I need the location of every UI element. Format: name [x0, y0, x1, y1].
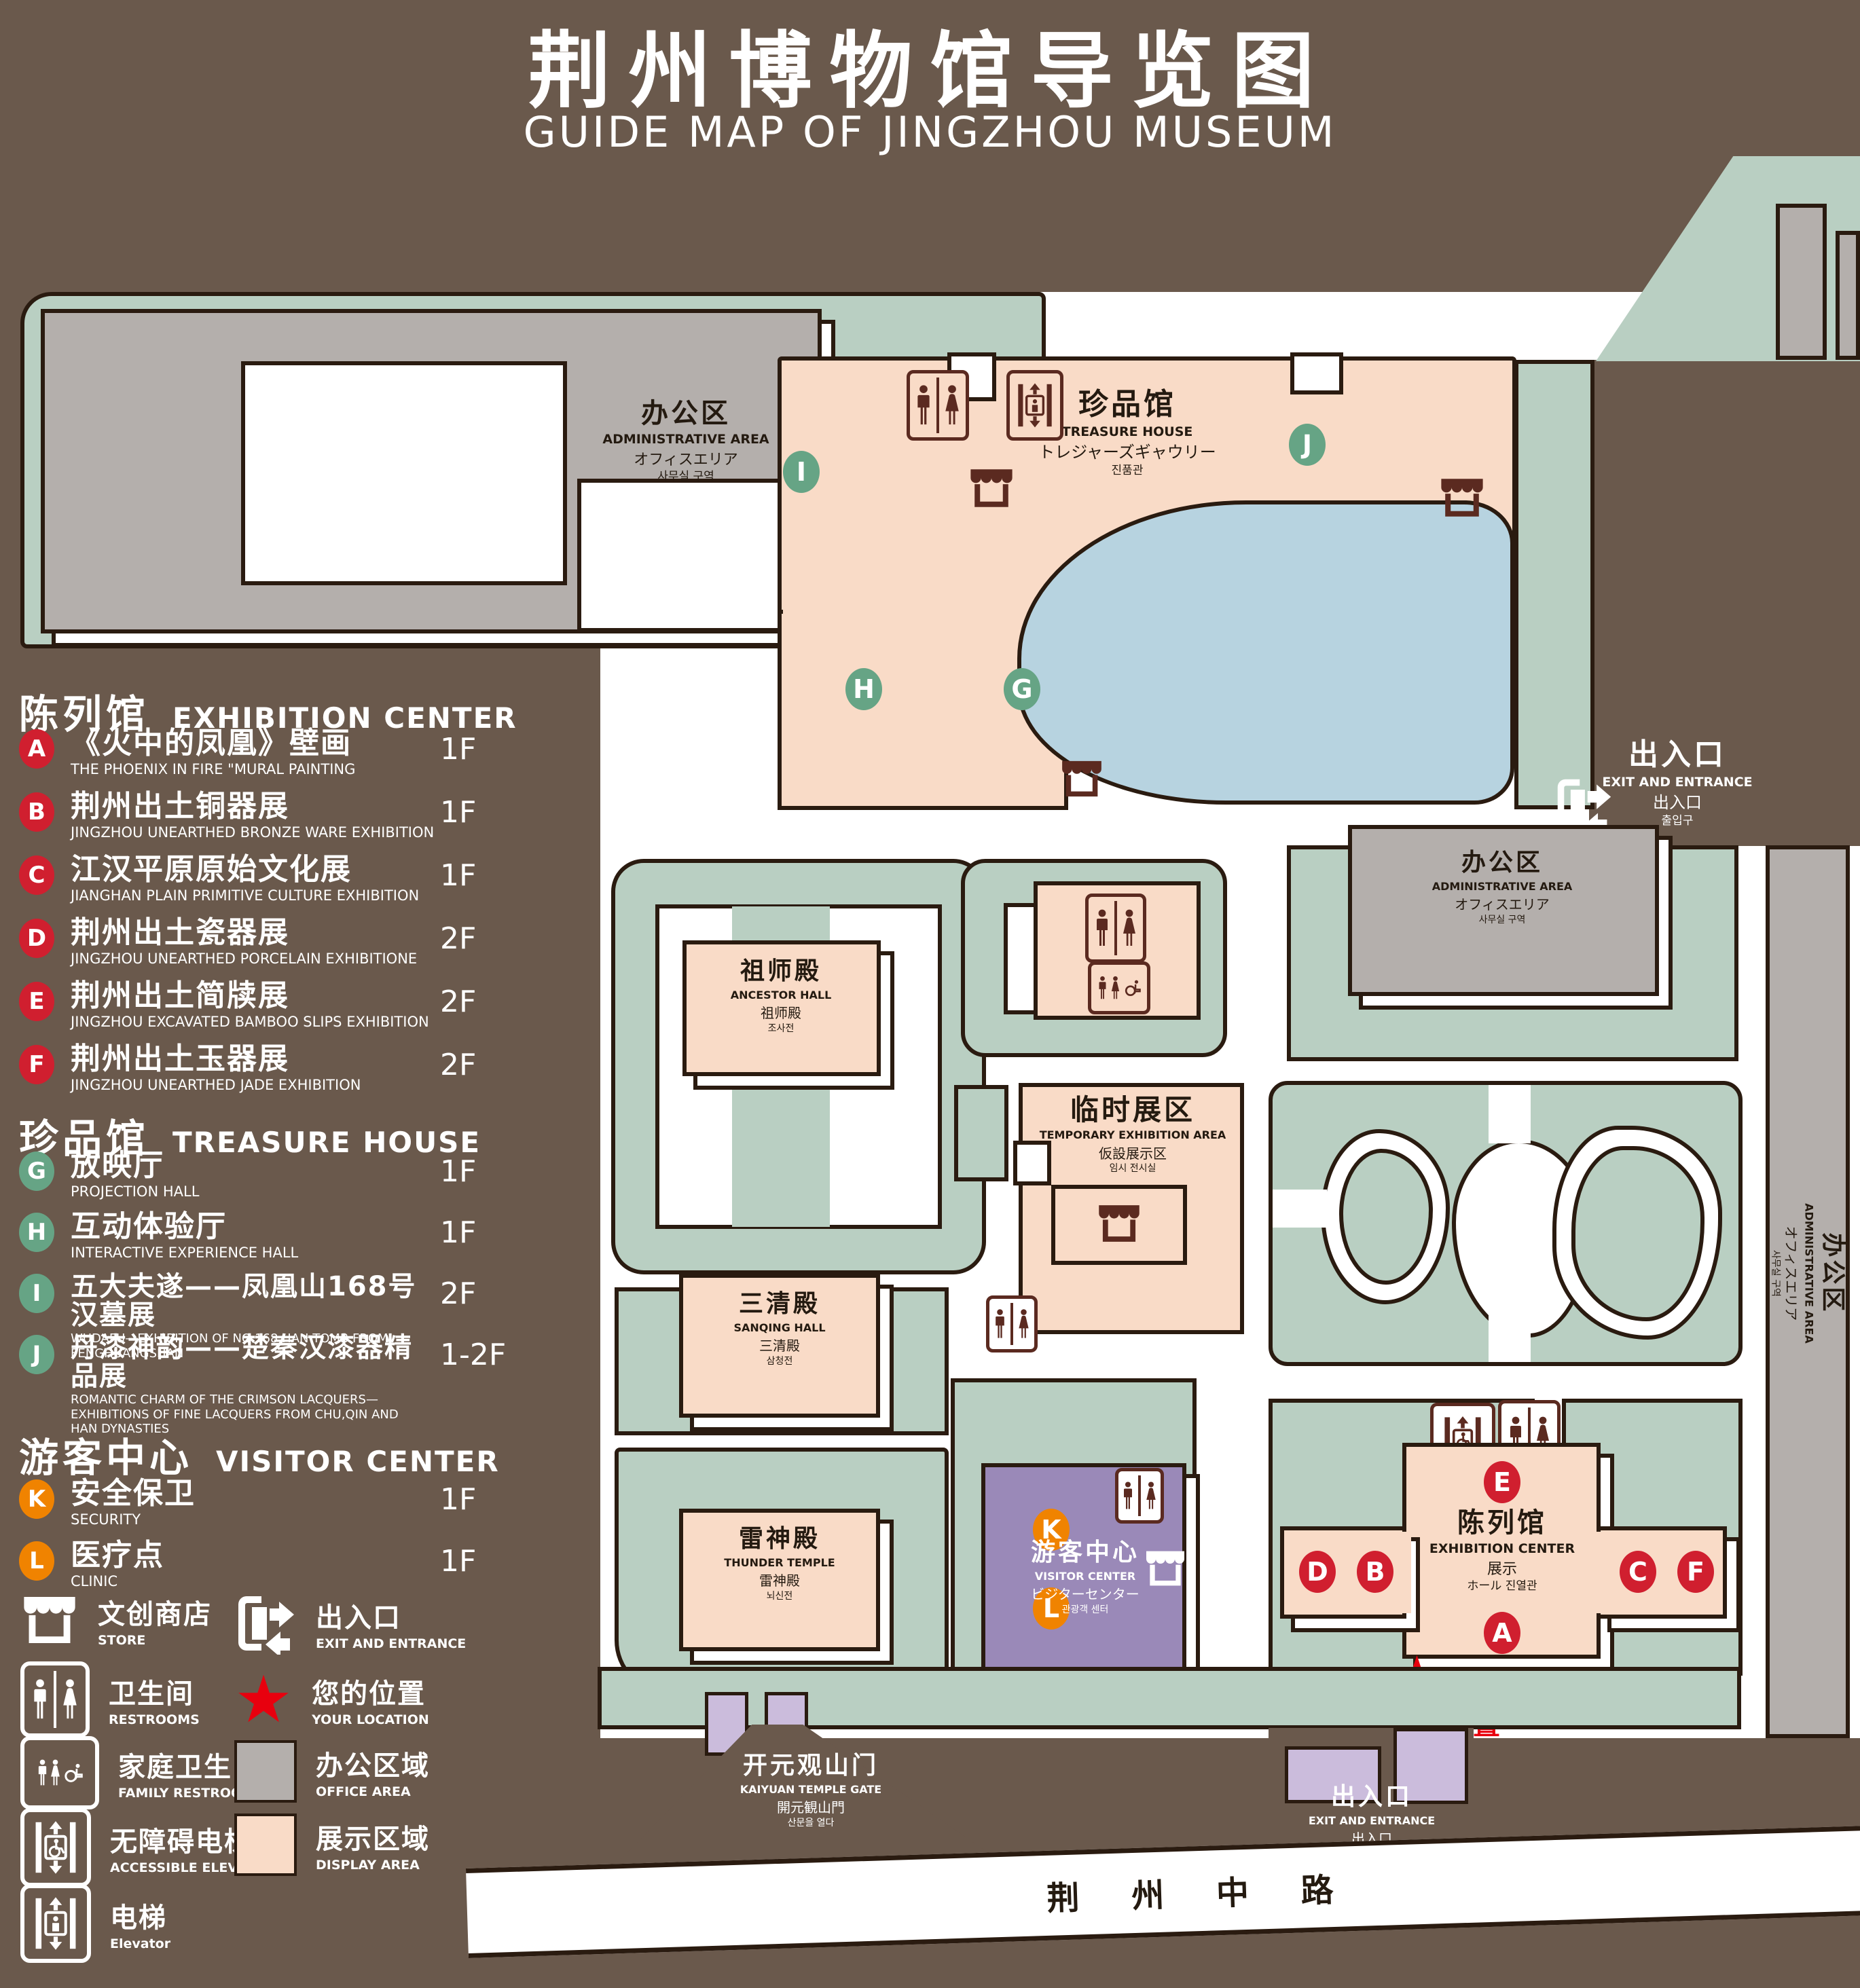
legend-item-F: F 荆州出土玉器展JINGZHOU UNEARTHED JADE EXHIBIT…: [19, 1044, 515, 1094]
label-temporary-exhibition: 临时展区TEMPORARY EXHIBITION AREA 仮設展示区임시 전시…: [1040, 1094, 1226, 1174]
store-icon: [1059, 759, 1104, 798]
legend-section-visitor: 游客中心VISITOR CENTER: [19, 1426, 500, 1483]
treasure-house-seam: [783, 597, 1063, 619]
legend-item-G: G 放映厅PROJECTION HALL 1F: [19, 1150, 515, 1200]
page-subtitle: GUIDE MAP OF JINGZHOU MUSEUM: [0, 107, 1860, 157]
legend-symbol-elevator: 电梯Elevator: [20, 1884, 170, 1963]
store-icon: [1438, 477, 1486, 519]
marker-I: I: [783, 451, 820, 493]
legend-item-C: C 江汉平原原始文化展JIANGHAN PLAIN PRIMITIVE CULT…: [19, 854, 515, 904]
legend-symbol-store: 文创商店STORE: [20, 1592, 212, 1648]
legend-symbol-family-restrooms: 家庭卫生间FAMILY RESTROOMS: [20, 1736, 264, 1809]
badge-F: F: [19, 1045, 54, 1084]
legend-item-B: B 荆州出土铜器展JINGZHOU UNEARTHED BRONZE WARE …: [19, 791, 515, 841]
garden-island-east: [1571, 1146, 1704, 1321]
lawn-east-column: [1514, 360, 1594, 809]
legend-item-H: H 互动体验厅INTERACTIVE EXPERIENCE HALL 1F: [19, 1211, 515, 1262]
badge-I: I: [19, 1274, 54, 1313]
legend-item-D: D 荆州出土瓷器展JINGZHOU UNEARTHED PORCELAIN EX…: [19, 917, 515, 968]
legend-item-L: L 医疗点CLINIC 1F: [19, 1540, 515, 1590]
building-sliver-2: [1836, 231, 1860, 360]
exhibition-seam-east: [1593, 1532, 1604, 1613]
store-icon: [1096, 1203, 1142, 1244]
garden-path-north: [1489, 1085, 1531, 1143]
family-restrooms-icon: [20, 1736, 99, 1809]
marker-D: D: [1299, 1551, 1336, 1593]
label-exit-northeast: 出入口EXIT AND ENTRANCE 出入口출입구: [1602, 739, 1752, 827]
legend-symbol-restrooms: 卫生间RESTROOMS: [20, 1661, 200, 1737]
label-ancestor-hall: 祖师殿ANCESTOR HALL 祖师殿조사전: [731, 959, 832, 1034]
elevator-icon: [1006, 370, 1063, 441]
store-icon: [968, 467, 1015, 509]
label-admin-east: 办公区ADMINISTRATIVE AREA オフィスエリア사무실 구역: [1432, 850, 1573, 925]
restrooms-icon: [907, 370, 969, 441]
legend-item-J: J 丹漆神韵——楚秦汉漆器精品展ROMANTIC CHARM OF THE CR…: [19, 1333, 515, 1437]
store-icon: [1144, 1549, 1187, 1587]
building-sliver-1: [1776, 204, 1827, 360]
restrooms-icon: [20, 1661, 90, 1737]
marker-A: A: [1484, 1612, 1520, 1654]
legend-item-A: A 《火中的凤凰》壁画THE PHOENIX IN FIRE "MURAL PA…: [19, 728, 515, 778]
badge-C: C: [19, 855, 54, 895]
courtyard-northwest: [241, 361, 567, 585]
label-admin-strip: 办公区ADMINISTRATIVE AREA オフィスエリア사무실 구역: [1770, 1203, 1846, 1344]
office-area-swatch: [234, 1740, 297, 1803]
display-area-swatch: [234, 1814, 297, 1876]
badge-B: B: [19, 792, 54, 832]
garden-path-west: [1273, 1190, 1327, 1228]
garden-path-south: [1489, 1300, 1531, 1362]
label-admin-northwest: 办公区ADMINISTRATIVE AREA オフィスエリア사무실 구역: [602, 399, 769, 483]
page-title: 荆州博物馆导览图: [0, 4, 1860, 124]
badge-E: E: [19, 982, 54, 1021]
your-location-star-icon: ★: [234, 1667, 293, 1732]
marker-F: F: [1677, 1551, 1714, 1593]
label-exhibition-center: 陈列馆EXHIBITION CENTER 展示ホール 진열관: [1429, 1509, 1575, 1593]
label-kaiyuan-gate: 开元观山门KAIYUAN TEMPLE GATE 開元観山門산문을 열다: [740, 1753, 881, 1828]
badge-L: L: [19, 1541, 54, 1581]
badge-K: K: [19, 1479, 54, 1519]
marker-H: H: [845, 668, 882, 710]
marker-G: G: [1004, 668, 1040, 710]
marker-B: B: [1357, 1551, 1393, 1593]
lawn-temporary-west: [954, 1085, 1008, 1181]
label-treasure-house: 珍品馆TREASURE HOUSE トレジャーズギャウリー진품관: [1038, 388, 1216, 477]
treasure-house-notch-2: [1290, 352, 1343, 394]
legend-symbol-your-location: ★ 您的位置YOUR LOCATION: [234, 1667, 429, 1732]
map-west-mask: [501, 645, 600, 1741]
badge-A: A: [19, 729, 54, 769]
marker-J: J: [1289, 424, 1326, 466]
legend-item-K: K 安全保卫SECURITY 1F: [19, 1478, 515, 1528]
badge-G: G: [19, 1152, 54, 1191]
marker-E: E: [1484, 1461, 1520, 1503]
restrooms-icon: [986, 1295, 1038, 1352]
marker-C: C: [1620, 1551, 1656, 1593]
badge-H: H: [19, 1213, 54, 1252]
badge-J: J: [19, 1335, 54, 1374]
legend-item-E: E 荆州出土简牍展JINGZHOU EXCAVATED BAMBOO SLIPS…: [19, 980, 515, 1031]
label-thunder-temple: 雷神殿THUNDER TEMPLE 雷神殿뇌신전: [724, 1526, 835, 1602]
restrooms-icon: [1115, 1468, 1164, 1524]
elevator-icon: [20, 1884, 91, 1963]
family-restrooms-icon: [1088, 961, 1150, 1014]
label-visitor-center: 游客中心VISITOR CENTER ビジターセンター관광객 센터: [1031, 1540, 1139, 1615]
legend-symbol-office-area: 办公区域OFFICE AREA: [234, 1740, 430, 1803]
legend-symbol-display-area: 展示区域DISPLAY AREA: [234, 1814, 430, 1876]
legend-symbol-exit: 出入口EXIT AND ENTRANCE: [234, 1592, 466, 1655]
guide-map-poster: 荆州博物馆导览图 GUIDE MAP OF JINGZHOU MUSEUM 办公…: [0, 0, 1860, 1988]
accessible-elevator-icon: [20, 1808, 91, 1887]
store-icon: [20, 1594, 79, 1646]
badge-D: D: [19, 919, 54, 958]
exit-icon: [234, 1592, 297, 1655]
exhibition-seam-west: [1400, 1532, 1411, 1613]
restrooms-icon: [1085, 894, 1146, 963]
label-sanqing-hall: 三清殿SANQING HALL 三清殿삼청전: [733, 1291, 825, 1367]
